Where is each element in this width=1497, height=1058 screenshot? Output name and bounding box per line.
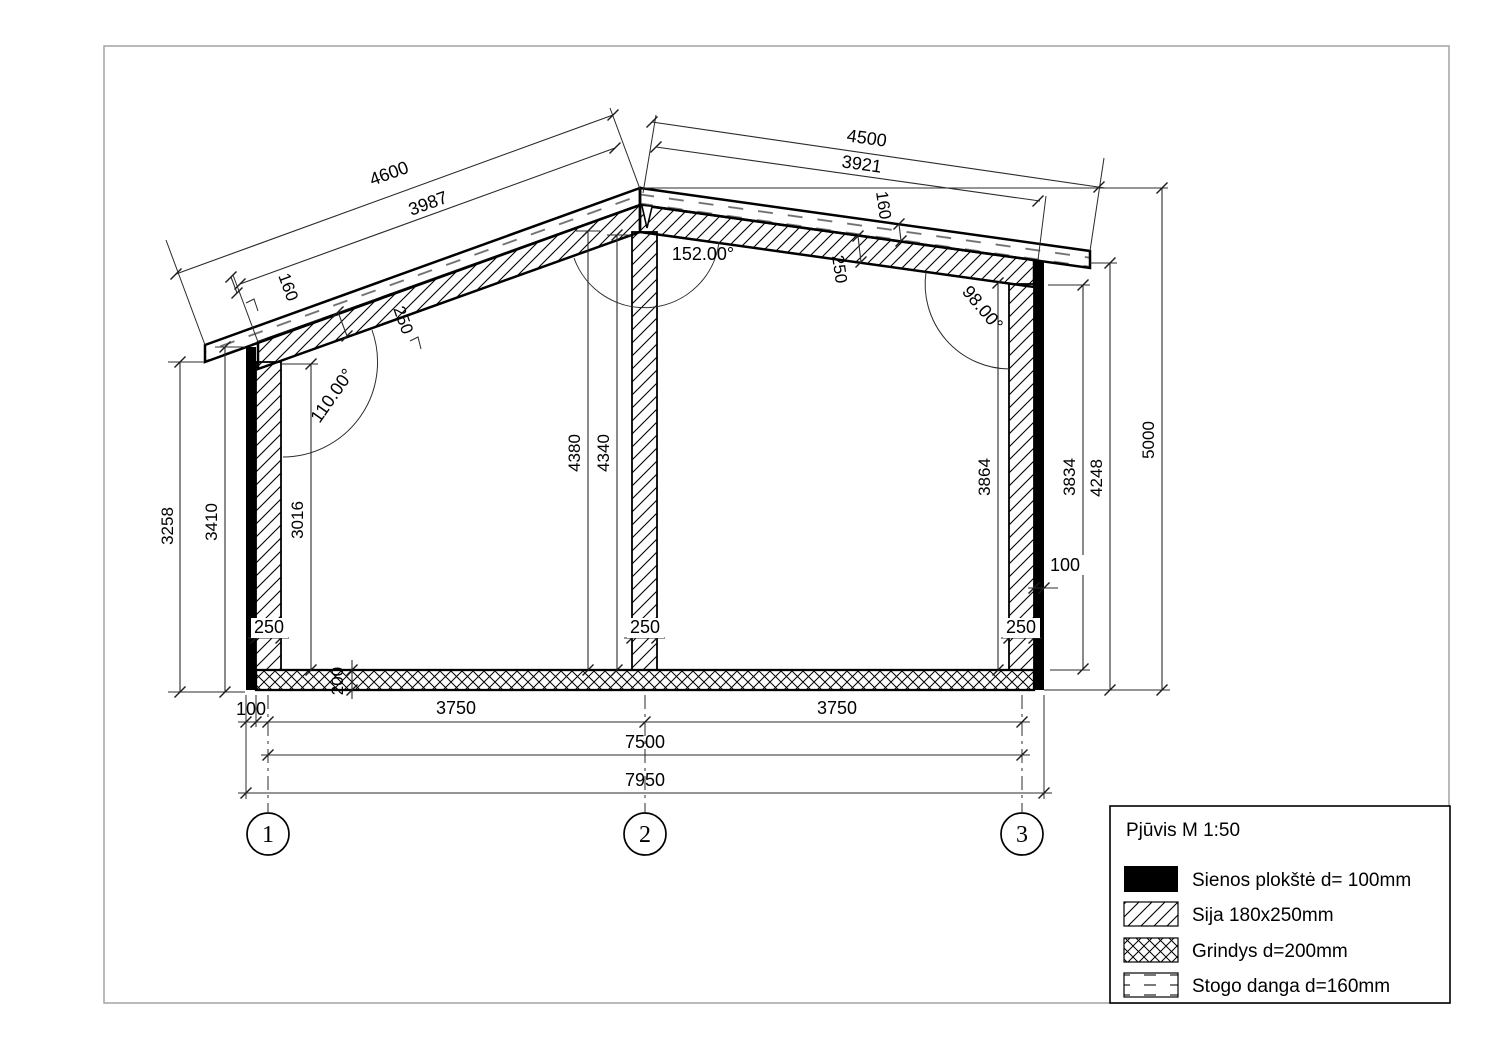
grid-bubble-1-label: 1 [262, 822, 274, 848]
dim-span-1-3: 7500 [625, 732, 665, 752]
legend-title: Pjūvis M 1:50 [1126, 820, 1240, 841]
dim-right-beam-thickness: 250 [828, 254, 851, 285]
dim-right-col-width: 250 [1006, 617, 1036, 637]
dim-span-1-2: 3750 [436, 698, 476, 718]
legend: Pjūvis M 1:50 Sienos plokštė d= 100mm Si… [1110, 806, 1450, 1003]
legend-swatch-beam [1124, 902, 1178, 926]
dim-right-plate-width: 100 [1050, 555, 1080, 575]
legend-label-beam: Sija 180x250mm [1192, 905, 1334, 926]
dim-floor-thickness: 200 [328, 667, 347, 695]
dim-span-2-3: 3750 [817, 698, 857, 718]
section-drawing: 4600 3987 4500 3921 160 250 160 250 110.… [0, 0, 1497, 1058]
floor-slab [256, 670, 1034, 690]
dim-mid-col-width: 250 [630, 617, 660, 637]
right-wall-column [1009, 284, 1034, 670]
legend-swatch-wall-plate [1124, 866, 1178, 892]
dim-left-outer-height: 3258 [158, 507, 177, 545]
dim-angle-ridge: 152.00° [672, 244, 734, 264]
dim-right-cover-thickness: 160 [872, 190, 895, 221]
dim-left-plate-width: 100 [236, 699, 266, 719]
dim-left-clear-height: 3016 [288, 501, 307, 539]
legend-label-floor: Grindys d=200mm [1192, 941, 1348, 962]
dim-left-plate-height: 3410 [202, 503, 221, 541]
dim-mid-col-height-a: 4380 [565, 434, 584, 472]
dim-ridge-height: 5000 [1139, 421, 1158, 459]
dim-right-plate-height: 3834 [1060, 458, 1079, 496]
dim-right-clear-height: 3864 [975, 458, 994, 496]
center-column [632, 232, 657, 670]
dim-left-col-width: 250 [254, 617, 284, 637]
legend-label-wall-plate: Sienos plokštė d= 100mm [1192, 870, 1411, 891]
legend-swatch-floor [1124, 938, 1178, 962]
legend-swatch-roof-covering [1124, 973, 1178, 997]
dim-mid-col-height-b: 4340 [594, 434, 613, 472]
grid-bubble-2-label: 2 [639, 822, 651, 848]
dim-right-eave-height: 4248 [1087, 459, 1106, 497]
blueprint-page: 4600 3987 4500 3921 160 250 160 250 110.… [0, 0, 1497, 1058]
grid-bubble-3-label: 3 [1016, 822, 1028, 848]
dim-overall-width: 7950 [625, 770, 665, 790]
legend-label-roof-covering: Stogo danga d=160mm [1192, 976, 1390, 997]
